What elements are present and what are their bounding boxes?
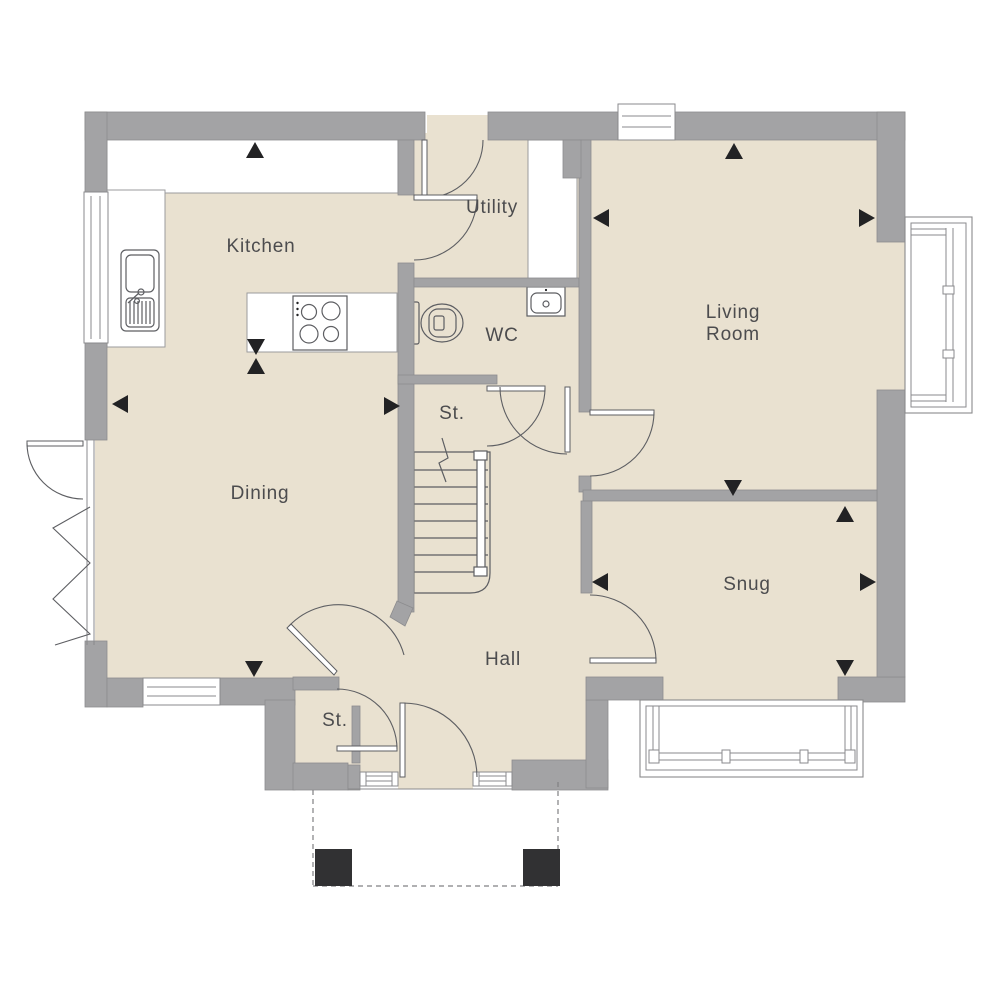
bifold-doors-left	[53, 440, 94, 645]
bifold-threshold	[87, 440, 94, 645]
porch-post-right	[523, 849, 560, 886]
worktop-left	[107, 190, 165, 347]
front-door-threshold	[398, 765, 473, 789]
wall-store-bottom	[293, 763, 348, 790]
bay-window-snug	[640, 700, 863, 777]
label-wc: WC	[485, 325, 518, 346]
wall-right-upper	[877, 112, 905, 242]
wall-kitchen-utility-upper	[398, 140, 414, 195]
window-kitchen-left	[84, 192, 108, 343]
label-kitchen: Kitchen	[227, 236, 296, 257]
worktop-top	[107, 138, 398, 193]
window-living-top	[618, 104, 675, 140]
window-dining-bottom	[143, 678, 220, 705]
door-dining-external	[27, 441, 83, 499]
porch	[313, 782, 560, 886]
label-living-line2: Room	[706, 324, 760, 345]
hob	[293, 296, 347, 350]
stair-handrail	[477, 456, 485, 572]
label-dining: Dining	[231, 483, 290, 504]
wall-corridor-left	[398, 263, 414, 612]
window-front-left	[360, 772, 398, 786]
wall-hall-right	[586, 700, 608, 788]
floor-plan-page: Kitchen Utility Living Room WC St. Dinin…	[0, 0, 1001, 1000]
wall-living-snug-divider	[583, 490, 877, 501]
floor-plan-drawing: Kitchen Utility Living Room WC St. Dinin…	[0, 0, 1001, 1000]
wall-top-right	[675, 112, 905, 140]
wall-chimney-stub	[563, 140, 581, 178]
bifold-zigzag	[53, 507, 90, 645]
bay-window-living	[905, 217, 972, 413]
porch-post-left	[315, 849, 352, 886]
window-front-right	[473, 772, 512, 786]
wall-store-left	[265, 700, 295, 790]
label-entrance-store: St.	[322, 710, 348, 731]
wall-store-top	[293, 677, 339, 690]
wall-snug-left	[581, 501, 592, 593]
wall-left-lower	[85, 641, 107, 707]
wall-store-right	[352, 706, 360, 763]
wall-wc-bottom	[398, 375, 497, 384]
wall-bottom-left-block	[107, 678, 143, 707]
wall-living-left	[579, 140, 591, 412]
wall-right-lower	[877, 390, 905, 677]
wall-left-mid	[85, 343, 107, 440]
label-snug: Snug	[723, 574, 771, 595]
wall-top-left	[85, 112, 425, 140]
wall-snug-bottom-right	[838, 677, 905, 702]
label-living-line1: Living	[706, 302, 760, 323]
wall-utility-wc-divider	[414, 278, 579, 287]
label-stair-store: St.	[439, 403, 465, 424]
label-hall: Hall	[485, 649, 521, 670]
wall-front-pier	[348, 765, 360, 790]
wall-snug-bottom-left	[586, 677, 663, 700]
label-utility: Utility	[466, 197, 518, 218]
basin	[527, 287, 565, 316]
wall-top-mid	[488, 112, 618, 140]
utility-door-recess	[427, 115, 488, 140]
wall-left-upper	[85, 112, 107, 192]
